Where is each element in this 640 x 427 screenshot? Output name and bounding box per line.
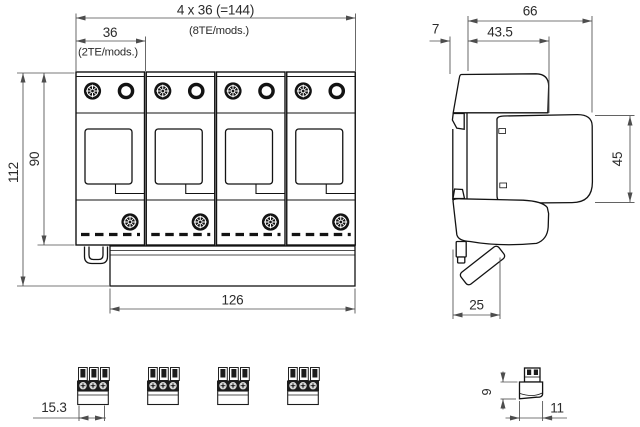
module-2 [146,72,215,245]
release-pin-tip [458,257,465,263]
lower-rail-clip [453,189,465,199]
dim-rear-offset-label: 7 [432,22,439,37]
module-3 [217,72,286,245]
lower-housing [453,199,549,245]
dim-total-depth-label: 66 [523,4,538,19]
upper-housing [453,74,549,113]
terminal-block-3 [217,368,249,405]
dim-upper-depth-label: 43.5 [487,25,512,40]
terminal-body [520,382,543,399]
dim-lower-depth-label: 25 [469,298,484,313]
dim-module-width-note: (2TE/mods.) [78,47,138,59]
terminal-block-2 [147,368,179,405]
dim-terminal-height-label: 9 [479,388,494,395]
module-4 [287,72,356,245]
module-1 [76,72,145,245]
dim-overall-height-label: 112 [6,162,21,183]
dim-total-width-label: 4 x 36 (=144) [177,3,254,18]
dim-module-width-label: 36 [103,25,118,40]
dim-terminal-width-label: 15.3 [41,400,66,415]
prong-contact-right [534,370,538,376]
dim-total-width-note: (8TE/mods.) [189,25,249,37]
dimension-drawing: 4 x 36 (=144) (8TE/mods.) 36 (2TE/mods.)… [0,0,640,427]
terminal-block-1 [77,368,109,405]
release-pin [456,242,466,258]
terminal-block-4 [287,368,319,405]
dim-body-height-label: 90 [27,152,42,167]
dim-rail-length-label: 126 [222,293,244,308]
drawing-canvas: 4 x 36 (=144) (8TE/mods.) 36 (2TE/mods.)… [0,0,640,427]
din-rail [110,246,355,286]
dim-terminal-depth-label: 11 [550,401,564,416]
front-housing [497,115,592,204]
dim-front-height-label: 45 [610,152,625,167]
prong-contact-left [527,370,531,376]
